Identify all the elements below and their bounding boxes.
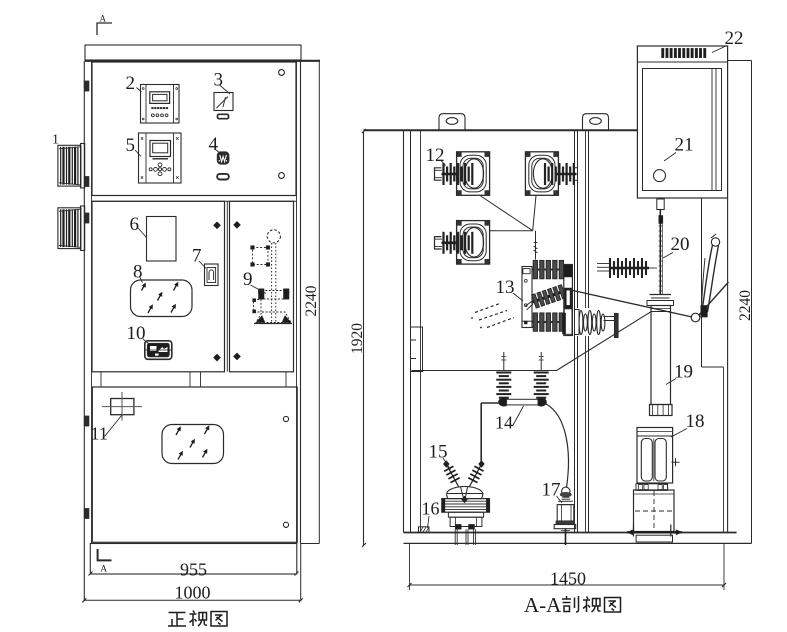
svg-text:2240: 2240	[737, 290, 754, 321]
svg-text:1: 1	[52, 133, 59, 148]
svg-text:19: 19	[674, 362, 693, 383]
svg-text:2240: 2240	[303, 285, 320, 316]
svg-text:20: 20	[671, 234, 690, 255]
svg-text:21: 21	[675, 135, 694, 156]
svg-text:A-A: A-A	[524, 593, 562, 617]
svg-text:2: 2	[126, 73, 136, 94]
svg-text:6: 6	[130, 214, 140, 235]
svg-text:5: 5	[126, 135, 136, 156]
svg-text:A: A	[100, 565, 107, 575]
svg-text:10: 10	[127, 323, 146, 344]
svg-text:22: 22	[725, 28, 744, 49]
svg-text:955: 955	[180, 560, 207, 580]
svg-text:15: 15	[429, 442, 448, 463]
svg-text:16: 16	[422, 499, 440, 519]
svg-text:13: 13	[496, 277, 515, 298]
svg-text:14: 14	[495, 413, 513, 433]
svg-text:1920: 1920	[349, 323, 366, 354]
svg-text:9: 9	[243, 269, 253, 290]
svg-text:18: 18	[686, 411, 705, 432]
svg-text:7: 7	[192, 246, 202, 267]
svg-text:4: 4	[209, 134, 219, 155]
svg-text:11: 11	[91, 424, 108, 444]
svg-text:A: A	[100, 14, 107, 24]
svg-text:1450: 1450	[550, 569, 586, 589]
svg-text:1000: 1000	[175, 583, 211, 603]
svg-text:12: 12	[426, 145, 445, 166]
